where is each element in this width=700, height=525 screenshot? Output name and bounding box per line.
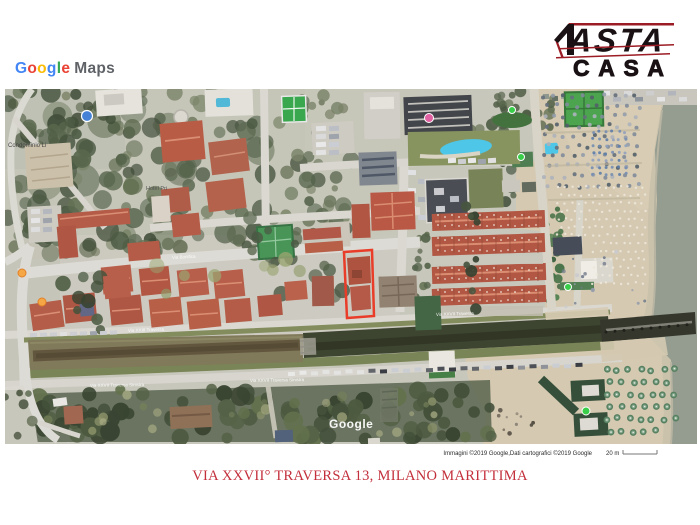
- svg-text:Immagini ©2019 Google,Dati car: Immagini ©2019 Google,Dati cartografici …: [443, 450, 592, 457]
- svg-text:20 m: 20 m: [606, 451, 619, 457]
- svg-text:Google: Google: [329, 417, 373, 431]
